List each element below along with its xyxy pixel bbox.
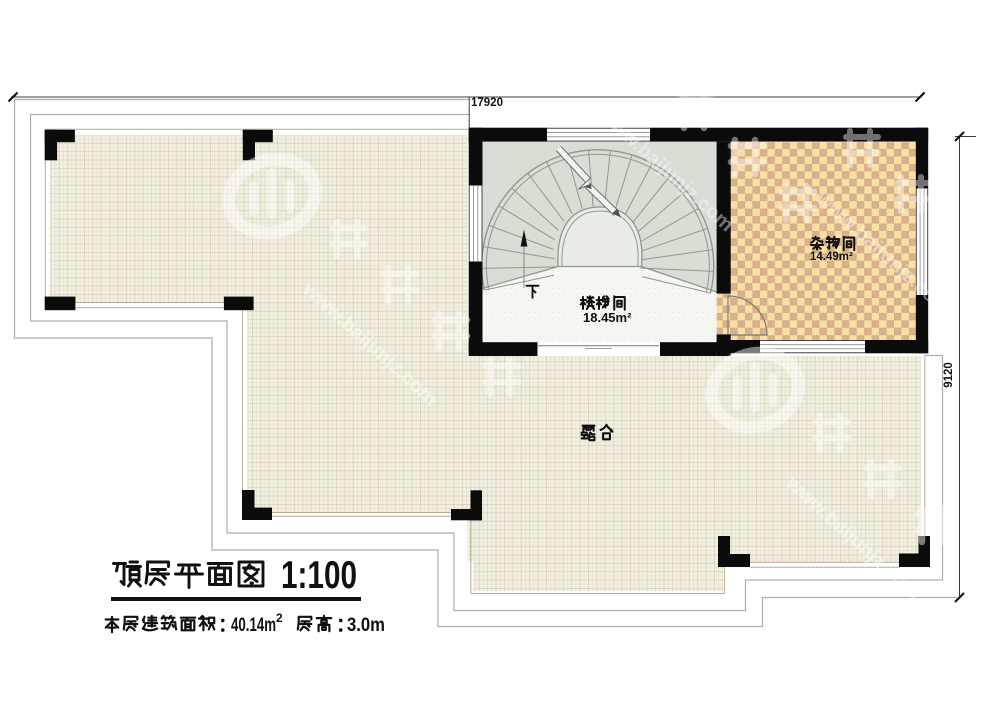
svg-text:3.0m: 3.0m xyxy=(347,615,385,636)
svg-text:18.45m²: 18.45m² xyxy=(583,310,632,325)
svg-text:9120: 9120 xyxy=(943,362,955,388)
svg-text:40.14m: 40.14m xyxy=(231,615,276,636)
svg-text:2: 2 xyxy=(276,611,283,625)
svg-text:14.49m²: 14.49m² xyxy=(810,251,853,263)
svg-text:www.baijunjz.com: www.baijunjz.com xyxy=(114,638,258,706)
svg-text:17920: 17920 xyxy=(471,97,503,109)
svg-text:1:100: 1:100 xyxy=(281,554,357,597)
